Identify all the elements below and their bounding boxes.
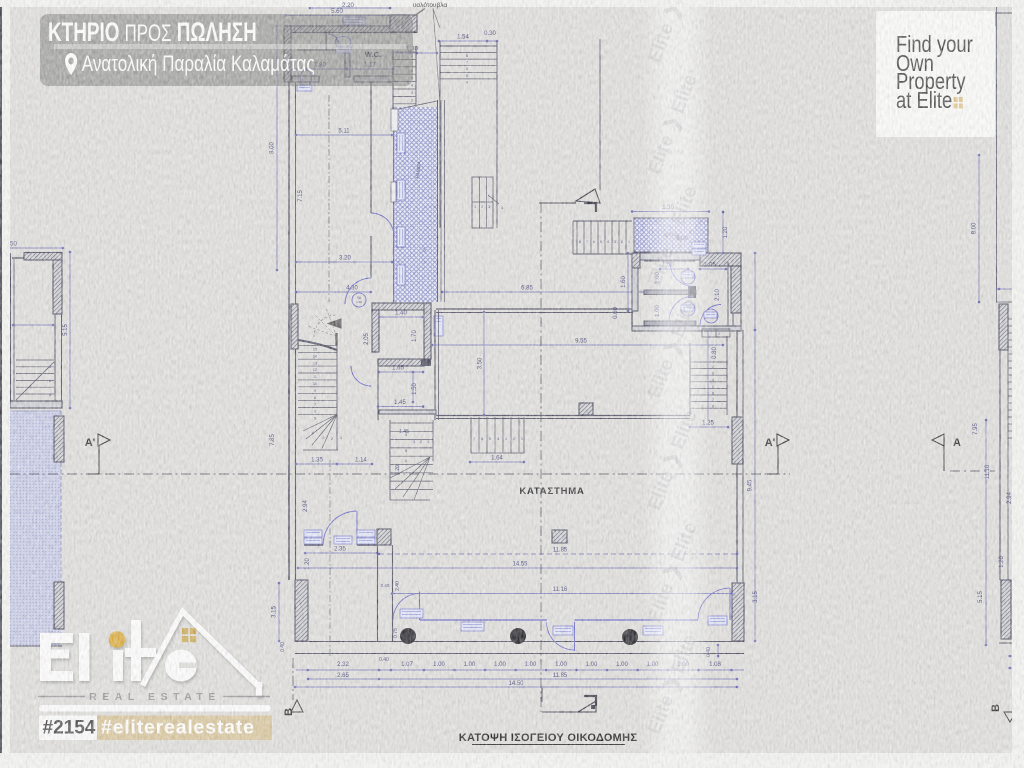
svg-text:2.40: 2.40 [395,581,401,591]
svg-text:6: 6 [481,437,483,441]
svg-text:REAL ESTATE: REAL ESTATE [89,691,221,703]
svg-text:5: 5 [600,240,602,244]
svg-text:4: 4 [411,84,413,88]
svg-text:A': A' [85,437,96,449]
svg-text:7: 7 [466,61,468,65]
svg-text:10: 10 [313,382,317,386]
svg-text:0.80: 0.80 [712,347,718,359]
svg-text:13: 13 [313,361,317,365]
svg-text:2: 2 [331,437,333,441]
svg-text:1.20: 1.20 [723,226,729,238]
svg-text:1.14: 1.14 [355,458,367,464]
svg-text:1: 1 [474,205,476,209]
svg-text:6: 6 [593,240,595,244]
svg-text:1.54: 1.54 [457,35,469,41]
svg-text:1.00: 1.00 [525,662,537,668]
svg-text:4: 4 [466,80,468,84]
svg-text:B: B [990,704,1002,712]
svg-text:3: 3 [488,205,490,209]
svg-text:7: 7 [473,437,475,441]
svg-text:5: 5 [314,417,316,421]
svg-text:4: 4 [312,431,314,435]
svg-text:4: 4 [501,206,503,210]
svg-text:3.50: 3.50 [478,357,484,369]
svg-text:2: 2 [718,332,720,336]
svg-text:2: 2 [420,440,422,444]
svg-text:6: 6 [466,67,468,71]
svg-text:1.00: 1.00 [464,662,476,668]
svg-text:3: 3 [505,437,507,441]
svg-text:3.15: 3.15 [753,591,759,603]
svg-text:4: 4 [497,437,499,441]
svg-text:1.35: 1.35 [311,458,323,464]
svg-text:1.07: 1.07 [401,662,413,668]
svg-text:0.30: 0.30 [484,31,496,37]
svg-text:0.60: 0.60 [613,307,619,319]
svg-text:4: 4 [49,392,52,397]
svg-text:11: 11 [313,375,317,379]
svg-text:0.40: 0.40 [379,657,389,663]
svg-text:15: 15 [313,348,317,352]
svg-text:1.40: 1.40 [395,311,407,317]
svg-text:0.60: 0.60 [356,300,362,304]
svg-text:2.94: 2.94 [303,500,309,512]
svg-text:4.20: 4.20 [395,465,401,475]
svg-text:1.00: 1.00 [616,662,628,668]
svg-text:11.85: 11.85 [553,673,568,679]
svg-text:1.65: 1.65 [392,366,404,372]
svg-text:14: 14 [313,354,317,358]
svg-text:9: 9 [314,389,316,393]
svg-text:2.10: 2.10 [715,289,721,301]
svg-text:ΚΑΤΑΣΤΗΜΑ: ΚΑΤΑΣΤΗΜΑ [519,486,584,497]
svg-text:11.16: 11.16 [553,587,568,593]
svg-text:3: 3 [322,436,324,440]
svg-text:#2154: #2154 [43,718,96,739]
svg-text:1: 1 [521,437,523,441]
svg-text:5.11: 5.11 [338,129,350,135]
svg-text:1.00: 1.00 [433,662,445,668]
svg-text:6.85: 6.85 [521,286,533,292]
svg-text:2: 2 [513,437,515,441]
svg-text:1.00: 1.00 [494,662,506,668]
svg-text:1.45: 1.45 [399,429,409,435]
svg-text:2: 2 [621,240,623,244]
svg-text:3: 3 [413,440,415,444]
svg-text:1.64: 1.64 [491,456,503,462]
svg-text:ΚΑΤΟΨΗ ΙΣΟΓΕΙΟΥ ΟΙΚΟΔΟΜΗΣ: ΚΑΤΟΨΗ ΙΣΟΓΕΙΟΥ ΟΙΚΟΔΟΜΗΣ [459,732,638,744]
svg-text:1.45: 1.45 [394,400,406,406]
svg-text:8.00: 8.00 [972,222,978,234]
svg-text:5: 5 [405,449,407,453]
svg-text:7.15: 7.15 [298,190,304,202]
svg-text:0.40: 0.40 [381,583,390,588]
svg-text:7: 7 [586,240,588,244]
svg-text:A': A' [765,437,776,449]
svg-text:14.55: 14.55 [512,562,528,568]
svg-text:5.15: 5.15 [63,324,69,336]
svg-text:1.70: 1.70 [412,330,418,342]
svg-text:5.15: 5.15 [978,591,984,603]
svg-text:#eliterealestate: #eliterealestate [101,717,255,739]
svg-text:ΚΛ: ΚΛ [422,247,428,253]
svg-text:2: 2 [481,205,483,209]
svg-text:1: 1 [427,440,429,444]
svg-text:1: 1 [628,240,630,244]
svg-text:1.20: 1.20 [999,556,1005,568]
svg-text:12: 12 [313,368,317,372]
svg-text:8: 8 [466,54,468,58]
svg-text:2.65: 2.65 [337,673,349,679]
svg-text:1.00: 1.00 [555,662,567,668]
svg-text:2.05: 2.05 [364,333,370,345]
svg-text:5: 5 [489,437,491,441]
svg-text:11.85: 11.85 [553,548,568,554]
svg-text:14.50: 14.50 [508,681,524,687]
svg-text:4: 4 [607,240,609,244]
svg-text:7.85: 7.85 [270,434,276,446]
svg-text:6: 6 [405,459,407,463]
svg-text:7: 7 [314,403,316,407]
svg-text:3.20: 3.20 [339,256,351,262]
svg-text:3: 3 [411,91,413,95]
svg-text:7.95: 7.95 [973,423,979,435]
svg-text:8: 8 [314,396,316,400]
svg-text:5: 5 [466,74,468,78]
svg-text:8.00: 8.00 [270,142,276,154]
svg-text:8: 8 [579,240,581,244]
svg-text:3: 3 [614,240,616,244]
svg-text:1.00: 1.00 [586,662,598,668]
svg-text:1: 1 [340,436,342,440]
svg-text:9.45: 9.45 [748,479,754,491]
svg-text:2.35: 2.35 [334,547,346,553]
svg-text:2.32: 2.32 [337,662,349,668]
svg-text:2: 2 [411,98,413,102]
svg-text:A: A [953,437,961,449]
svg-text:11.10: 11.10 [985,464,991,479]
svg-text:6: 6 [314,410,316,414]
svg-text:1.60: 1.60 [621,276,627,288]
svg-text:9.55: 9.55 [575,339,587,345]
svg-text:0.75: 0.75 [393,628,399,638]
